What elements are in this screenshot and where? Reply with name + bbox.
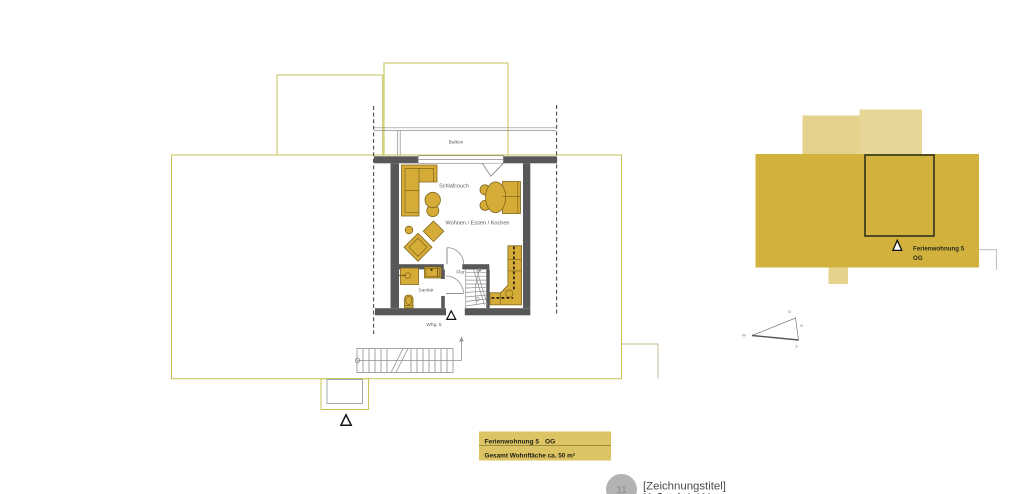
svg-text:OG: OG — [545, 439, 555, 446]
svg-text:Gesamt Wohnfläche ca. 50 m²: Gesamt Wohnfläche ca. 50 m² — [485, 453, 575, 460]
svg-text:OG: OG — [913, 255, 923, 262]
svg-text:W: W — [742, 334, 746, 338]
svg-text:O: O — [788, 310, 791, 314]
svg-text:Whg. 5: Whg. 5 — [426, 322, 442, 328]
svg-text:Sanitär: Sanitär — [418, 288, 434, 294]
svg-text:11: 11 — [616, 485, 627, 494]
svg-text:Ferienwohnung 5: Ferienwohnung 5 — [485, 439, 540, 446]
svg-text:Ferienwohnung 5: Ferienwohnung 5 — [913, 246, 965, 253]
svg-text:Wohnen / Essen / Kochen: Wohnen / Essen / Kochen — [445, 221, 509, 227]
svg-text:[Zeichnungstitel]: [Zeichnungstitel] — [643, 481, 726, 493]
svg-text:Schlafcouch: Schlafcouch — [439, 184, 469, 190]
svg-text:Balkon: Balkon — [449, 140, 464, 146]
svg-text:Flur: Flur — [456, 270, 465, 276]
svg-text:N: N — [800, 324, 803, 328]
